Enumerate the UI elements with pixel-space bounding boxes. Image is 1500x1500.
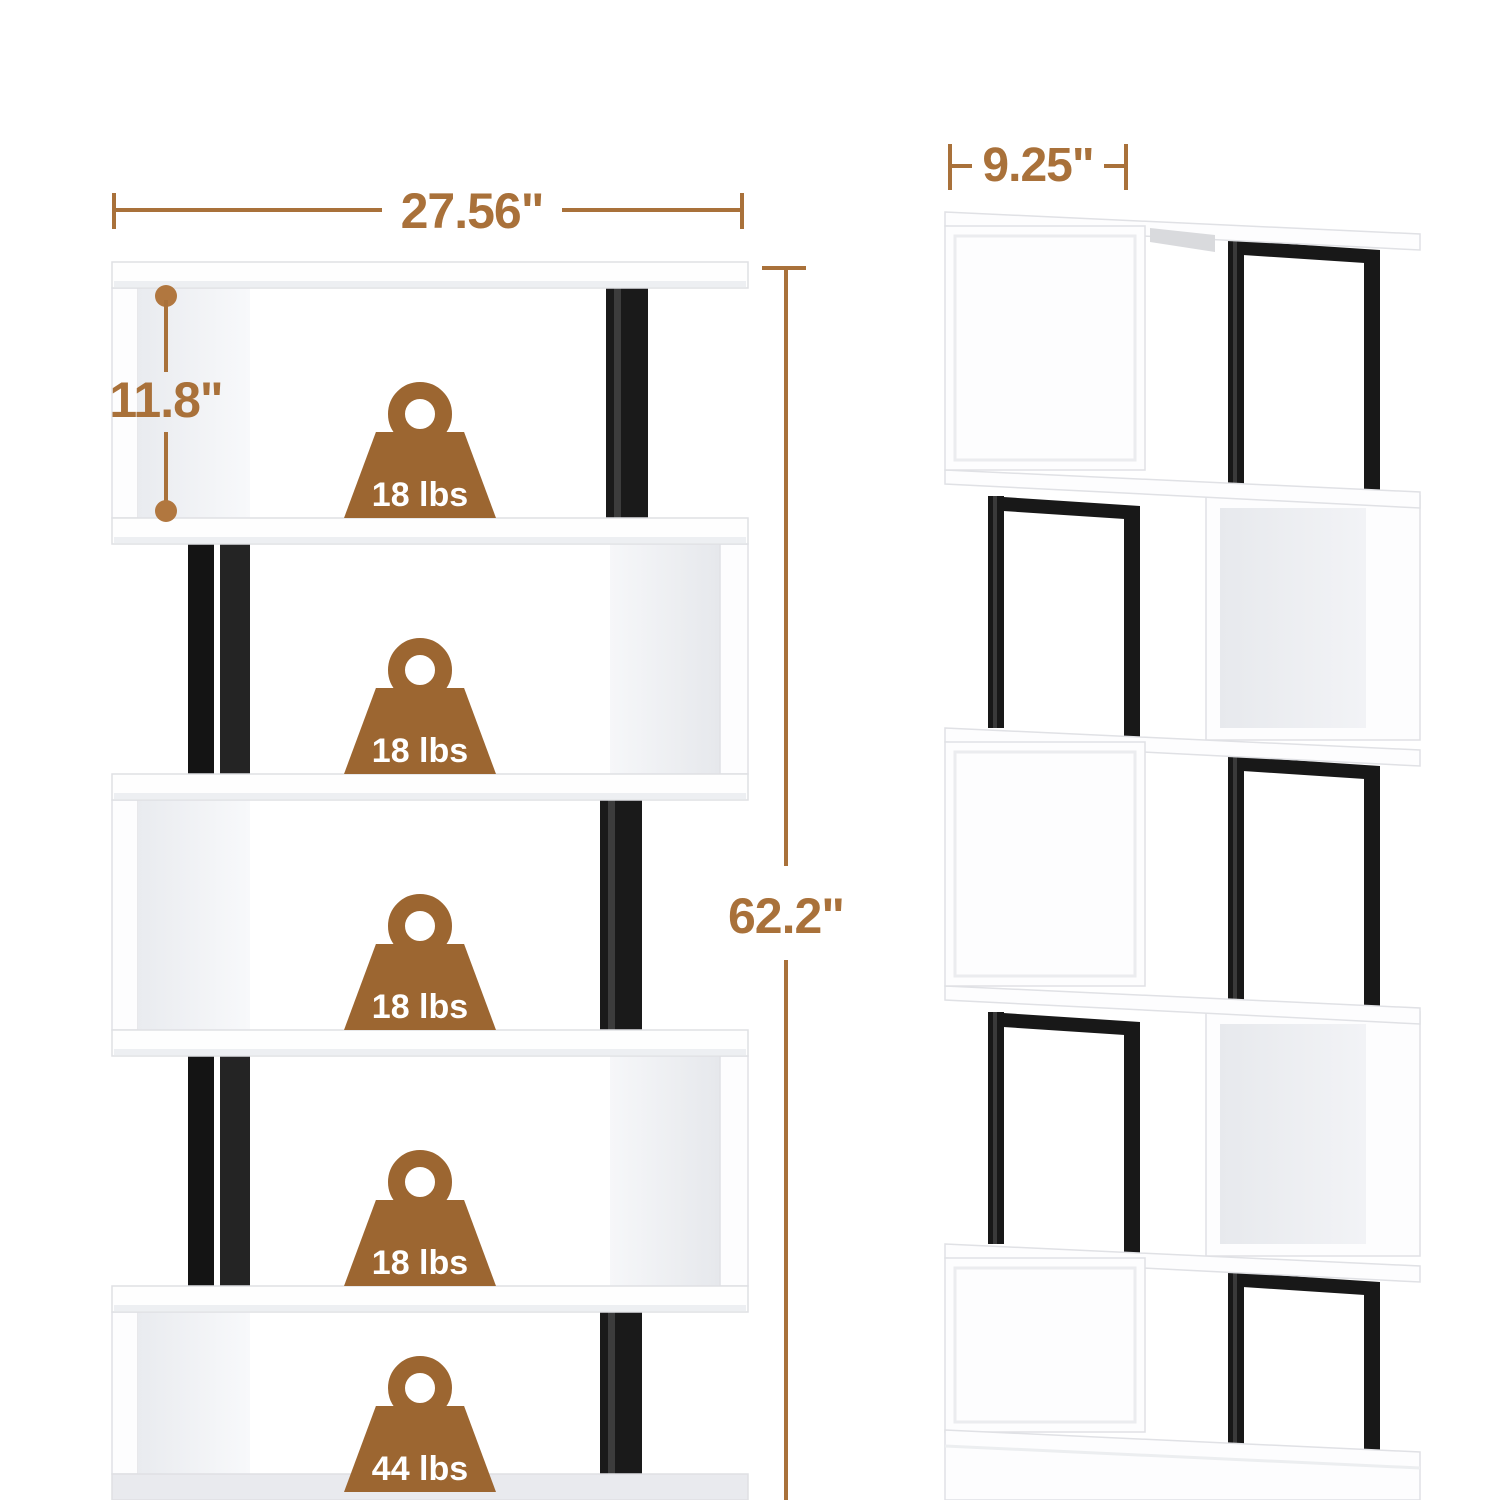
weight-capacity-badge: 18 lbs — [344, 894, 496, 1030]
product-dimension-diagram: 27.56" 11.8" 62.2" 9.25" 18 lbs 18 lbs — [0, 0, 1500, 1500]
dimension-line — [784, 960, 788, 1500]
dimension-line — [1104, 164, 1124, 168]
shelf-board — [112, 262, 748, 288]
dimension-line — [784, 268, 788, 866]
depth-dimension-label: 9.25" — [972, 142, 1104, 190]
dimension-tick — [1124, 144, 1128, 190]
dimension-line — [164, 300, 168, 372]
weight-capacity-badge: 44 lbs — [344, 1356, 496, 1492]
dimension-line — [164, 432, 168, 506]
side-bottom-board — [945, 1430, 1420, 1500]
shelf-height-dimension-label: 11.8" — [84, 375, 248, 425]
width-dimension-label: 27.56" — [380, 186, 564, 236]
dimension-line — [114, 208, 382, 212]
capacity-label: 18 lbs — [344, 478, 496, 512]
capacity-label: 18 lbs — [344, 990, 496, 1024]
weight-capacity-badge: 18 lbs — [344, 1150, 496, 1286]
weight-capacity-badge: 18 lbs — [344, 638, 496, 774]
shelf-board — [112, 518, 748, 544]
capacity-label: 44 lbs — [344, 1452, 496, 1486]
overall-height-dimension-label: 62.2" — [704, 891, 868, 941]
dimension-tick — [740, 193, 744, 229]
side-view-figure — [945, 212, 1420, 1500]
shelf-board — [112, 1030, 748, 1056]
capacity-label: 18 lbs — [344, 1246, 496, 1280]
weight-capacity-badge: 18 lbs — [344, 382, 496, 518]
dimension-dot — [155, 500, 177, 522]
shelf-board — [112, 774, 748, 800]
dimension-line — [562, 208, 744, 212]
capacity-label: 18 lbs — [344, 734, 496, 768]
dimension-line — [952, 164, 972, 168]
shelf-board — [112, 1286, 748, 1312]
bookcase-illustrations — [0, 0, 1500, 1500]
